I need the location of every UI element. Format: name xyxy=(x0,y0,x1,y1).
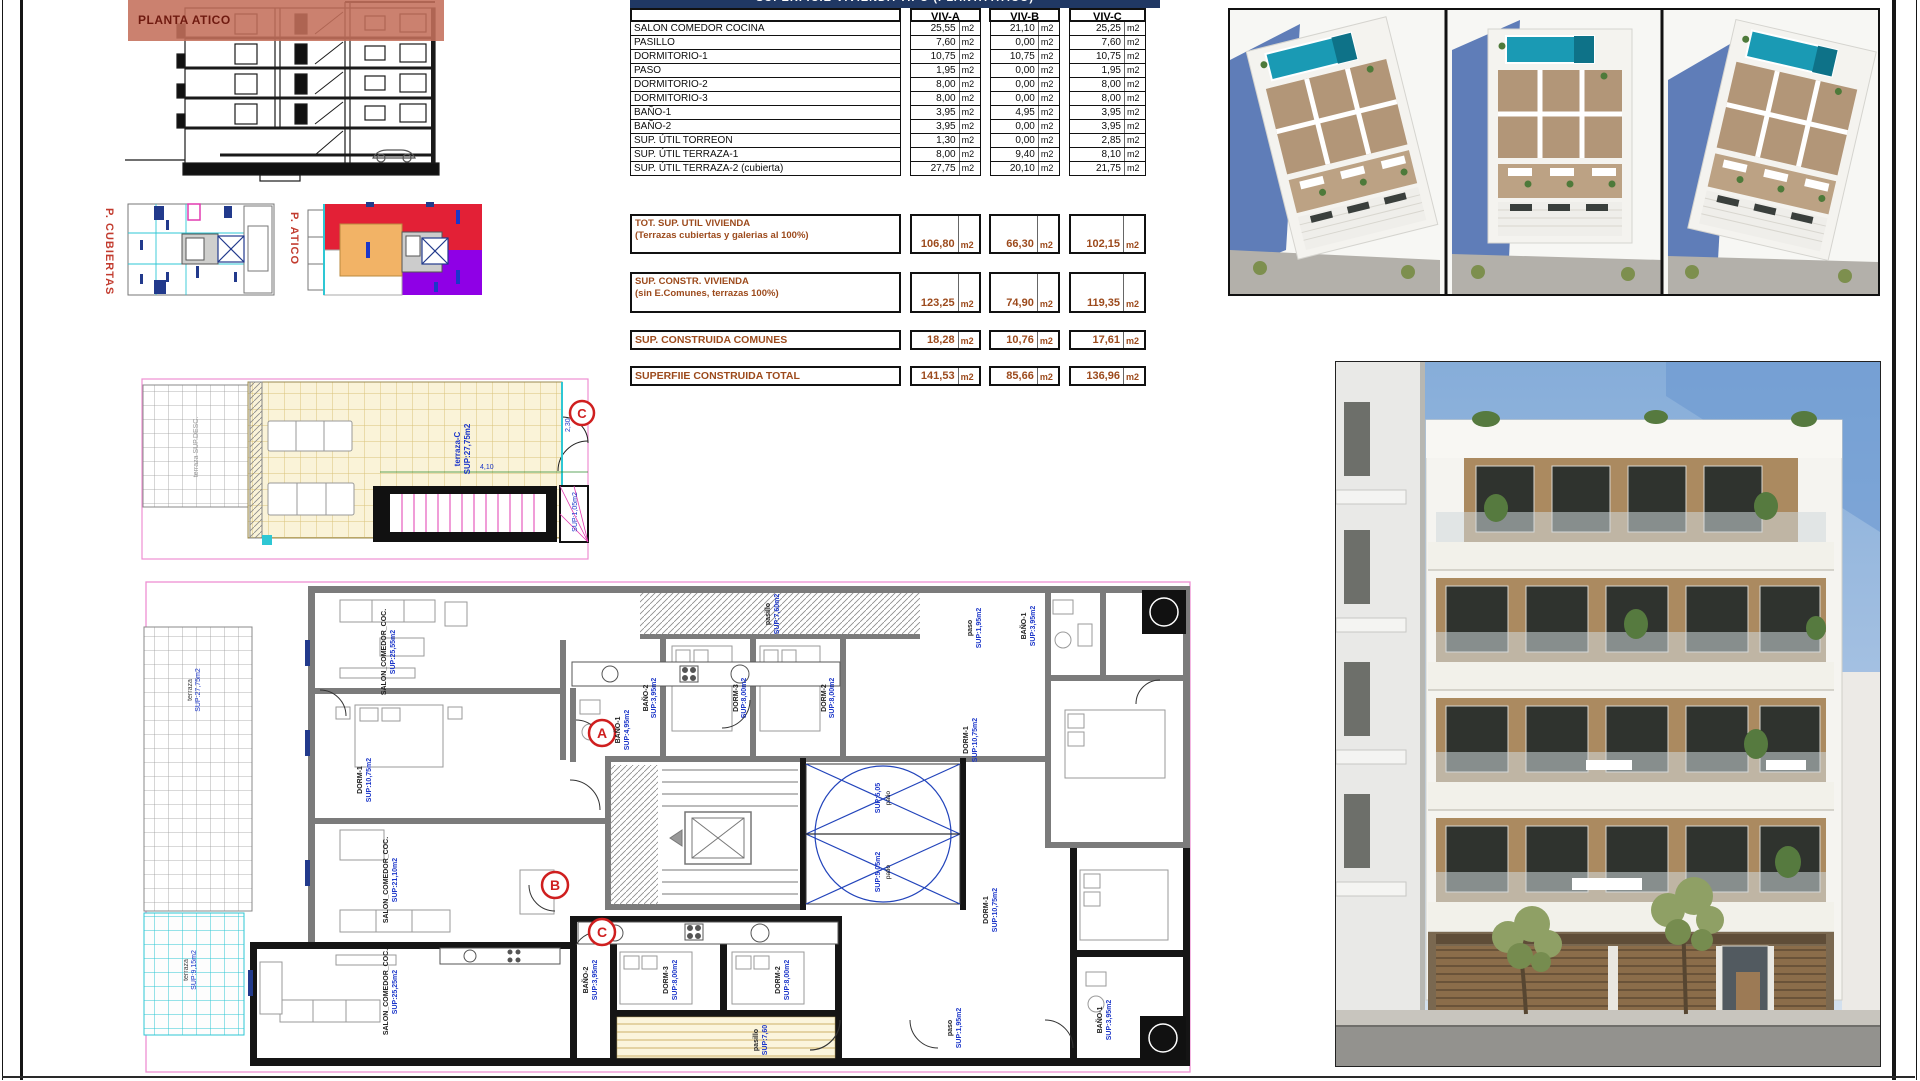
value-cell: 18,28m2 xyxy=(910,330,980,350)
drawing-sheet: { "sheet": { "section_label": "PLANTA AT… xyxy=(0,0,1920,1080)
frame-left-thin xyxy=(2,0,3,1080)
value-cell: 74,90m2 xyxy=(989,272,1059,313)
value-cell: 3,95m2 xyxy=(1069,119,1146,134)
value-cell: 27,75m2 xyxy=(910,161,980,176)
svg-text:SUP:3,95m2: SUP:3,95m2 xyxy=(651,678,658,719)
summary-label: TOT. SUP. UTIL VIVIENDA(Terrazas cubiert… xyxy=(630,214,901,254)
value-cell: 3,95m2 xyxy=(910,119,980,134)
value-cell: 25,25m2 xyxy=(1069,21,1146,36)
row-label: PASO xyxy=(630,63,901,78)
table-header-row: VIV-AVIV-BVIV-C xyxy=(630,8,1146,22)
row-label: DORMITORIO-1 xyxy=(630,49,901,64)
table-row: SUP. ÚTIL TERRAZA-18,00m29,40m28,10m2 xyxy=(630,148,1146,162)
value-cell: 123,25m2 xyxy=(910,272,980,313)
table-row: BAÑO-13,95m24,95m23,95m2 xyxy=(630,106,1146,120)
value-cell: 10,75m2 xyxy=(990,49,1060,64)
value-cell: 1,95m2 xyxy=(1069,63,1146,78)
label-paso-c: paso xyxy=(947,1020,954,1036)
main-building xyxy=(1426,410,1842,1024)
patio: patio SUP:5,05 patio SUP:5,05m2 xyxy=(806,764,960,904)
label-dorm2-c: DORM-2 xyxy=(775,966,782,994)
table-row: DORMITORIO-38,00m20,00m28,00m2 xyxy=(630,92,1146,106)
label-dorm2-top: DORM-2 xyxy=(821,684,828,712)
summary-label: SUPERFIIE CONSTRUIDA TOTAL xyxy=(630,366,901,386)
frame-left-thick xyxy=(20,0,23,1080)
value-cell: 1,30m2 xyxy=(910,133,980,148)
label-salon-c: SALON_COMEDOR_COC. xyxy=(383,949,390,1035)
value-cell: 0,00m2 xyxy=(990,63,1060,78)
street xyxy=(1336,1010,1880,1066)
svg-text:SUP:3,95m2: SUP:3,95m2 xyxy=(592,960,599,1001)
value-cell: 4,95m2 xyxy=(990,105,1060,120)
row-label: SUP. ÚTIL TORREON xyxy=(630,133,901,148)
value-cell: 119,35m2 xyxy=(1069,272,1146,313)
svg-text:C: C xyxy=(577,406,587,421)
table-row: SUP. ÚTIL TERRAZA-2 (cubierta)27,75m220,… xyxy=(630,162,1146,176)
label-bano1-tr: BAÑO-1 xyxy=(1019,612,1028,639)
value-cell: 0,00m2 xyxy=(990,133,1060,148)
svg-text:SUP:25,25m2: SUP:25,25m2 xyxy=(392,970,399,1014)
row-label: BAÑO-1 xyxy=(630,105,901,120)
patio-top-area: SUP:5,05 xyxy=(875,783,882,813)
summary-row: TOT. SUP. UTIL VIVIENDA(Terrazas cubiert… xyxy=(630,214,1146,254)
value-cell: 66,30m2 xyxy=(989,214,1059,254)
corner-cell xyxy=(630,8,901,22)
terrace-stair-area-label: SUP:1,05m2 xyxy=(572,492,579,532)
svg-text:A: A xyxy=(597,725,607,741)
label-bano2-c: BAÑO-2 xyxy=(581,966,590,993)
value-cell: 141,53m2 xyxy=(910,366,980,386)
label-pasillo-c: pasillo xyxy=(753,1029,760,1051)
svg-text:SUP:8,00m2: SUP:8,00m2 xyxy=(672,960,679,1001)
terrace-plan: terraza SUP.DESC. 4,10 2,30 terraza-C SU… xyxy=(140,377,606,572)
value-cell: 10,76m2 xyxy=(989,330,1059,350)
svg-text:SUP:10,75m2: SUP:10,75m2 xyxy=(992,888,999,932)
value-cell: 8,10m2 xyxy=(1069,147,1146,162)
table-row: DORMITORIO-110,75m210,75m210,75m2 xyxy=(630,50,1146,64)
svg-text:SUP:7,60: SUP:7,60 xyxy=(762,1025,769,1055)
roof-plan xyxy=(126,202,276,303)
column-header: VIV-A xyxy=(910,8,980,22)
svg-text:C: C xyxy=(597,924,607,940)
value-cell: 21,10m2 xyxy=(990,21,1060,36)
column-header: VIV-C xyxy=(1069,8,1146,22)
label-dorm3-c: DORM-3 xyxy=(663,966,670,994)
row-label: BAÑO-2 xyxy=(630,119,901,134)
value-cell: 85,66m2 xyxy=(989,366,1059,386)
label-bano1-b: BAÑO-1 xyxy=(613,716,622,743)
value-cell: 0,00m2 xyxy=(990,77,1060,92)
terrace-marker-c: C xyxy=(570,401,594,425)
roof-plan-label: P. CUBIERTAS xyxy=(103,208,115,300)
label-pasillo-top: pasillo xyxy=(765,603,772,625)
row-label: DORMITORIO-2 xyxy=(630,77,901,92)
svg-text:SUP:8,00m2: SUP:8,00m2 xyxy=(741,678,748,719)
svg-text:SUP:3,95m2: SUP:3,95m2 xyxy=(1106,1000,1113,1041)
column-header: VIV-B xyxy=(989,8,1059,22)
label-dorm1-tr: DORM-1 xyxy=(963,726,970,754)
value-cell: 136,96m2 xyxy=(1069,366,1146,386)
table-row: PASO1,95m20,00m21,95m2 xyxy=(630,64,1146,78)
table-row: DORMITORIO-28,00m20,00m28,00m2 xyxy=(630,78,1146,92)
value-cell: 3,95m2 xyxy=(910,105,980,120)
table-row: SUP. ÚTIL TORREON1,30m20,00m22,85m2 xyxy=(630,134,1146,148)
value-cell: 7,60m2 xyxy=(910,35,980,50)
svg-text:SUP:21,10m2: SUP:21,10m2 xyxy=(392,858,399,902)
table-row: SALON COMEDOR COCINA25,55m221,10m225,25m… xyxy=(630,22,1146,36)
label-bano1-c: BAÑO-1 xyxy=(1095,1006,1104,1033)
summary-row: SUPERFIIE CONSTRUIDA TOTAL141,53m285,66m… xyxy=(630,366,1146,386)
label-paso-top: paso xyxy=(967,620,974,636)
value-cell: 102,15m2 xyxy=(1069,214,1146,254)
terrace-dim-b: 4,10 xyxy=(480,464,494,471)
value-cell: 10,75m2 xyxy=(1069,49,1146,64)
value-cell: 0,00m2 xyxy=(990,91,1060,106)
neighbor-building-left xyxy=(1336,362,1425,1066)
svg-text:SUP:8,00m2: SUP:8,00m2 xyxy=(829,678,836,719)
patio-bottom-label: patio xyxy=(885,865,892,879)
value-cell: 8,00m2 xyxy=(1069,91,1146,106)
terrace-area-label: SUP:27,75m2 xyxy=(463,423,472,474)
label-bano2-top: BAÑO-2 xyxy=(641,684,650,711)
svg-text:SUP:8,00m2: SUP:8,00m2 xyxy=(784,960,791,1001)
terraza-cyan-area: SUP:9,15m2 xyxy=(191,950,198,990)
label-dorm3-top: DORM-3 xyxy=(733,684,740,712)
value-cell: 10,75m2 xyxy=(910,49,980,64)
summary-label: SUP. CONSTRUIDA COMUNES xyxy=(630,330,901,350)
terraza-left-area: SUP:27,75m2 xyxy=(195,668,202,712)
value-cell: 17,61m2 xyxy=(1069,330,1146,350)
row-label: SUP. ÚTIL TERRAZA-2 (cubierta) xyxy=(630,161,901,176)
label-dorm1-c: DORM-1 xyxy=(983,896,990,924)
svg-text:SUP:25,55m2: SUP:25,55m2 xyxy=(390,630,397,674)
patio-bottom-area: SUP:5,05m2 xyxy=(875,852,882,893)
summary-row: SUP. CONSTRUIDA COMUNES18,28m210,76m217,… xyxy=(630,330,1146,350)
svg-text:SUP:4,95m2: SUP:4,95m2 xyxy=(624,710,631,751)
areas-table: SUPERFICIE VIVIENDA TIPO (PLANTA ATICO) … xyxy=(630,0,1146,386)
svg-text:SUP:1,95m2: SUP:1,95m2 xyxy=(976,608,983,649)
value-cell: 21,75m2 xyxy=(1069,161,1146,176)
terrace-dim-a: 2,30 xyxy=(565,418,572,432)
row-label: SUP. ÚTIL TERRAZA-1 xyxy=(630,147,901,162)
label-dorm1-a: DORM-1 xyxy=(357,766,364,794)
table-row: PASILLO7,60m20,00m27,60m2 xyxy=(630,36,1146,50)
svg-text:B: B xyxy=(550,877,560,893)
facade-render xyxy=(1335,361,1881,1067)
terraza-cyan-label: terraza xyxy=(183,959,190,981)
frame-right-thick xyxy=(1892,0,1896,1080)
value-cell: 1,95m2 xyxy=(910,63,980,78)
areas-table-title: SUPERFICIE VIVIENDA TIPO (PLANTA ATICO) xyxy=(630,0,1160,8)
atico-plan-label: P. ATICO xyxy=(288,212,300,292)
value-cell: 0,00m2 xyxy=(990,35,1060,50)
frame-right-thin xyxy=(1916,0,1917,1080)
svg-text:SUP:7,60m2: SUP:7,60m2 xyxy=(774,594,781,635)
label-salon-b: SALON_COMEDOR_COC. xyxy=(383,837,390,923)
value-cell: 2,85m2 xyxy=(1069,133,1146,148)
roof-renders xyxy=(1228,8,1880,296)
value-cell: 8,00m2 xyxy=(910,91,980,106)
svg-text:SUP:10,75m2: SUP:10,75m2 xyxy=(366,758,373,802)
svg-text:SUP:10,75m2: SUP:10,75m2 xyxy=(972,718,979,762)
value-cell: 8,00m2 xyxy=(910,147,980,162)
summary-row: SUP. CONSTR. VIVIENDA(sin E.Comunes, ter… xyxy=(630,272,1146,313)
value-cell: 25,55m2 xyxy=(910,21,980,36)
patio-top-label: patio xyxy=(885,791,892,805)
value-cell: 8,00m2 xyxy=(910,77,980,92)
value-cell: 7,60m2 xyxy=(1069,35,1146,50)
areas-table-body: VIV-AVIV-BVIV-CSALON COMEDOR COCINA25,55… xyxy=(630,8,1146,386)
section-label: PLANTA ATICO xyxy=(138,13,231,27)
row-label: PASILLO xyxy=(630,35,901,50)
row-label: SALON COMEDOR COCINA xyxy=(630,21,901,36)
value-cell: 20,10m2 xyxy=(990,161,1060,176)
label-salon-a: SALON_COMEDOR_COC. xyxy=(381,609,388,695)
value-cell: 0,00m2 xyxy=(990,119,1060,134)
row-label: DORMITORIO-3 xyxy=(630,91,901,106)
terraza-left-label: terraza xyxy=(187,679,194,701)
value-cell: 9,40m2 xyxy=(990,147,1060,162)
atico-plan xyxy=(306,202,486,303)
value-cell: 3,95m2 xyxy=(1069,105,1146,120)
value-cell: 106,80m2 xyxy=(910,214,980,254)
svg-text:SUP:3,95m2: SUP:3,95m2 xyxy=(1030,606,1037,647)
terrace-uncovered-label: terraza SUP.DESC. xyxy=(193,417,200,478)
value-cell: 8,00m2 xyxy=(1069,77,1146,92)
svg-text:SUP:1,95m2: SUP:1,95m2 xyxy=(956,1008,963,1049)
main-floor-plan: terraza SUP:27,75m2 terraza SUP:9,15m2 xyxy=(140,580,1198,1081)
terrace-room-label: terraza-C xyxy=(453,431,462,466)
summary-label: SUP. CONSTR. VIVIENDA(sin E.Comunes, ter… xyxy=(630,272,901,313)
table-row: BAÑO-23,95m20,00m23,95m2 xyxy=(630,120,1146,134)
building-section-drawing: PLANTA ATICO xyxy=(125,0,445,185)
